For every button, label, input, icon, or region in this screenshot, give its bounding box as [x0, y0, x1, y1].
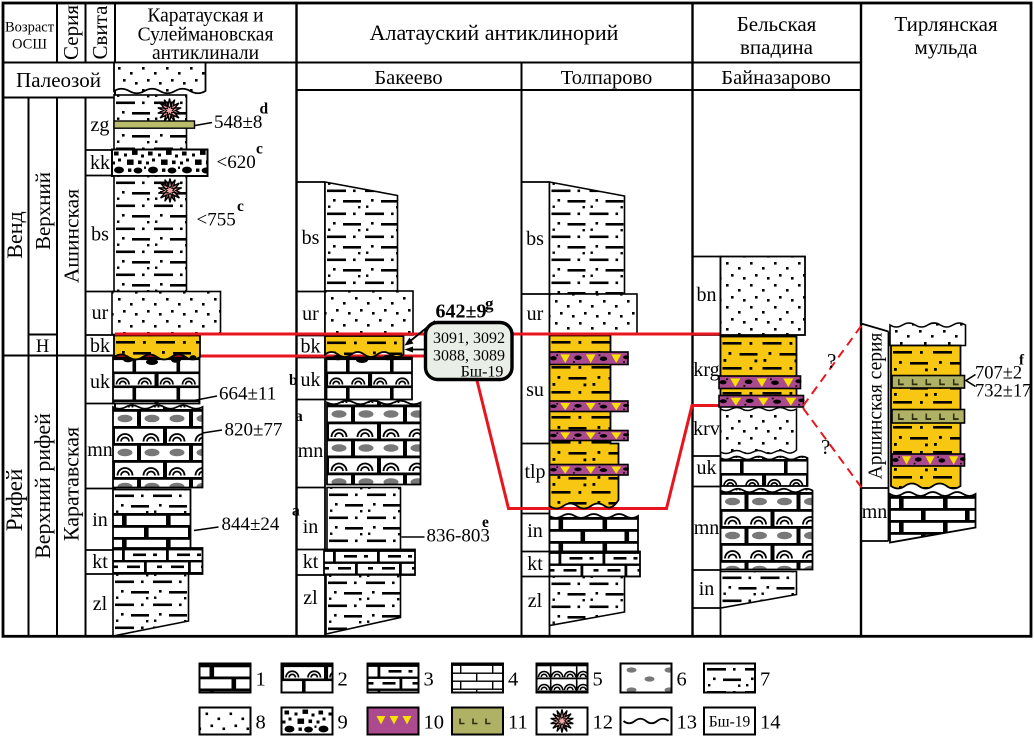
- svg-text:впадина: впадина: [740, 35, 814, 59]
- svg-text:krg: krg: [693, 359, 719, 381]
- svg-text:in: in: [92, 509, 108, 531]
- svg-text:664±11: 664±11: [219, 384, 276, 405]
- svg-text:548±8: 548±8: [214, 112, 262, 133]
- svg-text:zl: zl: [528, 590, 543, 612]
- svg-text:Палеозой: Палеозой: [16, 68, 101, 92]
- svg-text:Свита: Свита: [88, 5, 112, 60]
- svg-text:3: 3: [424, 669, 434, 691]
- svg-text:Верхний рифей: Верхний рифей: [30, 413, 55, 559]
- svg-text:bs: bs: [302, 227, 320, 249]
- svg-text:5: 5: [593, 669, 603, 691]
- svg-text:Бакеево: Бакеево: [374, 67, 442, 89]
- svg-text:<755: <755: [197, 210, 236, 231]
- svg-text:9: 9: [338, 712, 348, 734]
- svg-text:bs: bs: [91, 224, 109, 246]
- svg-text:uk: uk: [697, 457, 717, 479]
- svg-text:3088, 3089: 3088, 3089: [433, 348, 505, 365]
- svg-text:kk: kk: [90, 152, 110, 174]
- svg-text:732±17: 732±17: [975, 382, 1031, 402]
- svg-text:in: in: [699, 578, 715, 600]
- svg-text:ОСШ: ОСШ: [12, 37, 47, 53]
- svg-text:krv: krv: [693, 418, 720, 440]
- svg-text:zl: zl: [93, 593, 108, 615]
- svg-text:tlp: tlp: [524, 461, 545, 483]
- svg-text:mn: mn: [862, 501, 888, 523]
- svg-text:uk: uk: [301, 369, 321, 391]
- svg-text:Венд: Венд: [2, 211, 27, 258]
- svg-text:4: 4: [508, 669, 518, 691]
- svg-text:Бельская: Бельская: [737, 12, 817, 36]
- svg-text:Серия: Серия: [59, 5, 83, 60]
- svg-text:a: a: [295, 408, 303, 425]
- svg-text:Бш-19: Бш-19: [461, 364, 504, 381]
- svg-text:?: ?: [827, 349, 836, 373]
- svg-text:Байназарово: Байназарово: [721, 67, 830, 89]
- svg-text:g: g: [485, 294, 494, 313]
- svg-text:?: ?: [821, 435, 830, 459]
- svg-text:6: 6: [677, 669, 687, 691]
- svg-text:a: a: [292, 503, 300, 520]
- svg-text:bs: bs: [526, 228, 544, 250]
- svg-text:836-803: 836-803: [427, 526, 490, 547]
- svg-text:Бш-19: Бш-19: [709, 714, 751, 731]
- svg-text:mn: mn: [298, 440, 324, 462]
- svg-text:e: e: [482, 514, 489, 531]
- svg-text:bn: bn: [697, 284, 717, 306]
- svg-text:ur: ur: [527, 303, 544, 325]
- svg-text:b: b: [289, 372, 298, 389]
- svg-text:10: 10: [424, 712, 445, 734]
- svg-text:bk: bk: [301, 336, 321, 358]
- svg-text:in: in: [527, 520, 543, 542]
- svg-text:13: 13: [677, 712, 698, 734]
- svg-text:Аршинская серия: Аршинская серия: [866, 333, 887, 480]
- svg-text:c: c: [237, 198, 244, 215]
- svg-text:Каратауская и: Каратауская и: [147, 6, 263, 27]
- svg-text:uk: uk: [90, 371, 110, 393]
- svg-text:8: 8: [256, 712, 266, 734]
- svg-text:3091, 3092: 3091, 3092: [433, 330, 505, 347]
- svg-text:14: 14: [760, 712, 781, 734]
- svg-text:Рифей: Рифей: [2, 469, 27, 532]
- svg-text:mn: mn: [87, 439, 113, 461]
- svg-text:Н: Н: [36, 337, 49, 357]
- svg-text:7: 7: [760, 669, 770, 691]
- svg-text:zl: zl: [303, 587, 318, 609]
- svg-text:c: c: [256, 141, 263, 158]
- svg-text:844±24: 844±24: [222, 514, 280, 535]
- svg-text:820±77: 820±77: [225, 420, 283, 441]
- svg-text:Ашинская: Ашинская: [60, 189, 84, 283]
- svg-text:707±2: 707±2: [975, 364, 1022, 384]
- svg-text:12: 12: [593, 712, 614, 734]
- svg-text:Толпарово: Толпарово: [561, 67, 653, 89]
- svg-text:in: in: [303, 516, 319, 538]
- svg-text:kt: kt: [527, 553, 543, 575]
- svg-text:kt: kt: [92, 551, 108, 573]
- svg-text:мульда: мульда: [915, 35, 979, 59]
- svg-text:Верхний: Верхний: [31, 172, 55, 250]
- svg-text:642±9: 642±9: [436, 301, 487, 323]
- svg-text:2: 2: [338, 669, 348, 691]
- svg-text:Возраст: Возраст: [5, 20, 55, 36]
- svg-text:mn: mn: [694, 517, 720, 539]
- svg-text:bk: bk: [90, 335, 110, 357]
- svg-text:d: d: [260, 101, 269, 118]
- svg-text:антиклинали: антиклинали: [152, 43, 259, 64]
- svg-text:kt: kt: [303, 551, 319, 573]
- svg-text:su: su: [526, 379, 544, 401]
- svg-text:11: 11: [508, 712, 528, 734]
- svg-text:Каратавская: Каратавская: [59, 427, 84, 541]
- svg-text:<620: <620: [217, 152, 256, 173]
- svg-text:zg: zg: [91, 114, 110, 136]
- svg-text:ur: ur: [302, 303, 319, 325]
- svg-text:Тирлянская: Тирлянская: [894, 12, 998, 36]
- svg-text:ur: ur: [92, 302, 109, 324]
- svg-text:1: 1: [256, 669, 266, 691]
- svg-text:Алатауский антиклинорий: Алатауский антиклинорий: [370, 20, 619, 45]
